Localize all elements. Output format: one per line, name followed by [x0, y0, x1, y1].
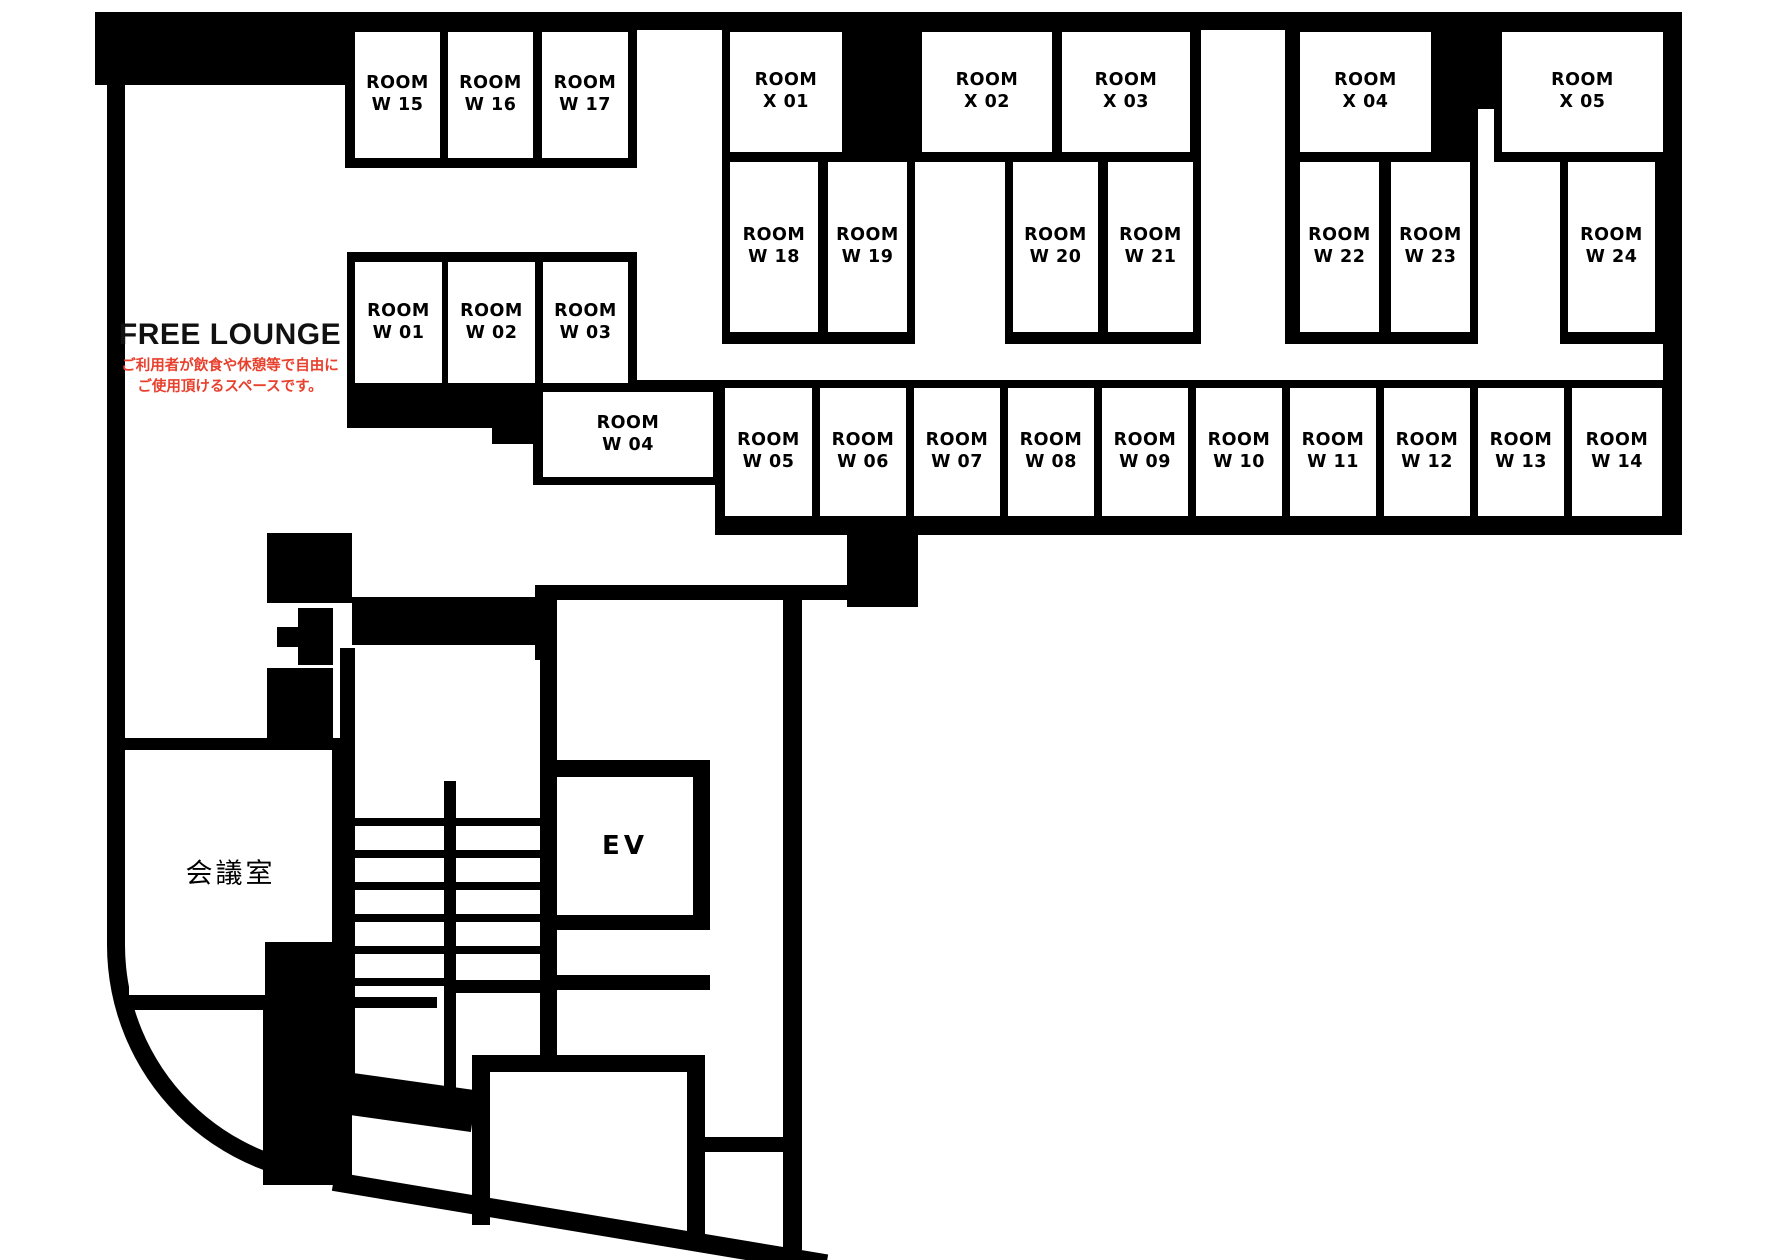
room-label-line1: ROOM [459, 73, 522, 95]
room-label-line1: ROOM [1334, 70, 1397, 92]
room-label-line2: W 07 [931, 452, 983, 474]
room-w07-label: ROOMW 07 [914, 388, 1000, 516]
wall-segment [352, 597, 540, 645]
wall-segment [472, 1055, 705, 1072]
wall-segment [687, 1072, 705, 1240]
wall-segment [703, 1137, 783, 1152]
wall-segment [456, 882, 540, 890]
room-w05-label: ROOMW 05 [725, 388, 812, 516]
room-w02-label: ROOMW 02 [448, 262, 535, 383]
room-label-line2: W 15 [372, 95, 424, 117]
wall-segment [107, 12, 125, 862]
free-lounge-note: ご利用者が飲食や休憩等で自由に ご使用頂けるスペースです。 [110, 356, 350, 398]
room-label-line1: ROOM [737, 430, 800, 452]
room-label-line1: ROOM [367, 301, 430, 323]
room-x05-label: ROOMX 05 [1502, 32, 1663, 152]
room-w19-label: ROOMW 19 [828, 162, 907, 332]
room-label-line2: W 02 [466, 323, 518, 345]
wall-segment [548, 975, 710, 990]
wall-segment [540, 585, 557, 1065]
room-label-line1: ROOM [956, 70, 1019, 92]
room-label-line2: X 01 [763, 92, 809, 114]
room-label-line2: W 23 [1405, 247, 1457, 269]
wall-segment [456, 946, 540, 954]
room-label-line2: W 22 [1314, 247, 1366, 269]
wall-segment [693, 760, 710, 930]
room-label-line2: W 11 [1307, 452, 1359, 474]
wall-segment [265, 942, 332, 995]
room-x01-label: ROOMX 01 [730, 32, 842, 152]
wall-segment [277, 627, 298, 647]
wall-segment [492, 392, 533, 444]
free-lounge-note-line1: ご利用者が飲食や休憩等で自由に [110, 356, 350, 377]
room-w20-label: ROOMW 20 [1013, 162, 1098, 332]
room-w17-label: ROOMW 17 [542, 32, 628, 158]
room-label-line1: ROOM [1114, 430, 1177, 452]
room-label-line2: W 09 [1119, 452, 1171, 474]
wall-segment [355, 850, 444, 858]
wall-segment [456, 850, 540, 858]
room-label-line1: ROOM [1208, 430, 1271, 452]
room-label-line1: ROOM [554, 73, 617, 95]
room-w18-label: ROOMW 18 [730, 162, 818, 332]
wall-segment-diagonal [340, 1072, 477, 1132]
wall-segment [355, 978, 444, 986]
room-label-line2: W 14 [1591, 452, 1643, 474]
room-label-line1: ROOM [366, 73, 429, 95]
room-w09-label: ROOMW 09 [1102, 388, 1188, 516]
floor-plan: FREE LOUNGE ご利用者が飲食や休憩等で自由に ご使用頂けるスペースです… [0, 0, 1775, 1260]
room-label-line1: ROOM [1586, 430, 1649, 452]
room-label-line2: W 24 [1586, 247, 1638, 269]
room-label-line1: ROOM [832, 430, 895, 452]
wall-segment [355, 946, 444, 954]
wall-segment [267, 668, 333, 748]
room-w04-label: ROOMW 04 [543, 392, 713, 477]
wall-segment [95, 12, 348, 85]
wall-segment [452, 980, 540, 993]
room-label-line1: ROOM [1580, 225, 1643, 247]
room-x04-label: ROOMX 04 [1300, 32, 1431, 152]
wall-segment [298, 608, 333, 665]
room-label-line2: X 05 [1560, 92, 1606, 114]
room-label-line2: W 10 [1213, 452, 1265, 474]
wall-segment [1431, 12, 1500, 109]
room-w13-label: ROOMW 13 [1478, 388, 1564, 516]
room-label-line1: ROOM [1308, 225, 1371, 247]
free-lounge-title: FREE LOUNGE [110, 318, 350, 352]
room-label-line1: ROOM [1024, 225, 1087, 247]
room-label-line1: ROOM [597, 413, 660, 435]
room-w11-label: ROOMW 11 [1290, 388, 1376, 516]
room-w03-label: ROOMW 03 [543, 262, 628, 383]
wall-segment [444, 781, 456, 1090]
room-label-line2: W 17 [559, 95, 611, 117]
room-w06-label: ROOMW 06 [820, 388, 906, 516]
elevator-label: EV [602, 831, 648, 861]
room-label-line1: ROOM [1302, 430, 1365, 452]
wall-segment [355, 818, 444, 826]
wall-segment-diagonal [332, 1172, 828, 1260]
room-label-line1: ROOM [1396, 430, 1459, 452]
wall-segment [355, 882, 444, 890]
room-label-line2: X 04 [1343, 92, 1389, 114]
room-w22-label: ROOMW 22 [1300, 162, 1379, 332]
room-label-line1: ROOM [1490, 430, 1553, 452]
room-label-line2: W 05 [743, 452, 795, 474]
room-label-line1: ROOM [743, 225, 806, 247]
room-label-line2: W 06 [837, 452, 889, 474]
room-label-line2: W 19 [842, 247, 894, 269]
free-lounge-area: FREE LOUNGE ご利用者が飲食や休憩等で自由に ご使用頂けるスペースです… [110, 318, 350, 398]
wall-segment [783, 598, 802, 1250]
room-label-line1: ROOM [1399, 225, 1462, 247]
room-label-line2: W 20 [1030, 247, 1082, 269]
wall-segment [548, 915, 710, 930]
wall-segment [456, 914, 540, 922]
room-label-line1: ROOM [554, 301, 617, 323]
wall-segment [847, 535, 918, 607]
meeting-room-label: 会議室 [186, 851, 276, 890]
wall-segment [352, 997, 437, 1008]
room-label-line1: ROOM [460, 301, 523, 323]
room-label-line2: W 21 [1125, 247, 1177, 269]
room-w08-label: ROOMW 08 [1008, 388, 1094, 516]
room-label-line2: W 04 [602, 435, 654, 457]
room-label-line2: W 03 [560, 323, 612, 345]
room-w01-label: ROOMW 01 [355, 262, 442, 383]
wall-segment [535, 585, 850, 600]
elevator-lobby-area [557, 930, 693, 975]
free-lounge-note-line2: ご使用頂けるスペースです。 [110, 377, 350, 398]
room-w16-label: ROOMW 16 [448, 32, 533, 158]
room-label-line2: X 02 [964, 92, 1010, 114]
wall-segment [548, 760, 710, 777]
room-x02-label: ROOMX 02 [922, 32, 1052, 152]
room-label-line2: W 13 [1495, 452, 1547, 474]
room-label-line1: ROOM [1020, 430, 1083, 452]
room-label-line1: ROOM [1551, 70, 1614, 92]
room-label-line2: W 12 [1401, 452, 1453, 474]
room-w12-label: ROOMW 12 [1384, 388, 1470, 516]
wall-segment [267, 533, 352, 603]
room-label-line2: W 16 [465, 95, 517, 117]
room-w24-label: ROOMW 24 [1568, 162, 1655, 332]
wall-segment [456, 818, 540, 826]
room-label-line2: X 03 [1103, 92, 1149, 114]
wall-segment [355, 914, 444, 922]
room-w15-label: ROOMW 15 [355, 32, 440, 158]
room-w23-label: ROOMW 23 [1391, 162, 1470, 332]
room-label-line2: W 18 [748, 247, 800, 269]
room-label-line1: ROOM [1095, 70, 1158, 92]
room-label-line1: ROOM [926, 430, 989, 452]
room-label-line1: ROOM [1119, 225, 1182, 247]
room-w21-label: ROOMW 21 [1108, 162, 1193, 332]
room-label-line2: W 01 [373, 323, 425, 345]
room-label-line1: ROOM [836, 225, 899, 247]
room-x03-label: ROOMX 03 [1062, 32, 1190, 152]
wall-segment [118, 738, 352, 750]
room-w10-label: ROOMW 10 [1196, 388, 1282, 516]
room-label-line2: W 08 [1025, 452, 1077, 474]
room-label-line1: ROOM [755, 70, 818, 92]
room-w14-label: ROOMW 14 [1572, 388, 1662, 516]
